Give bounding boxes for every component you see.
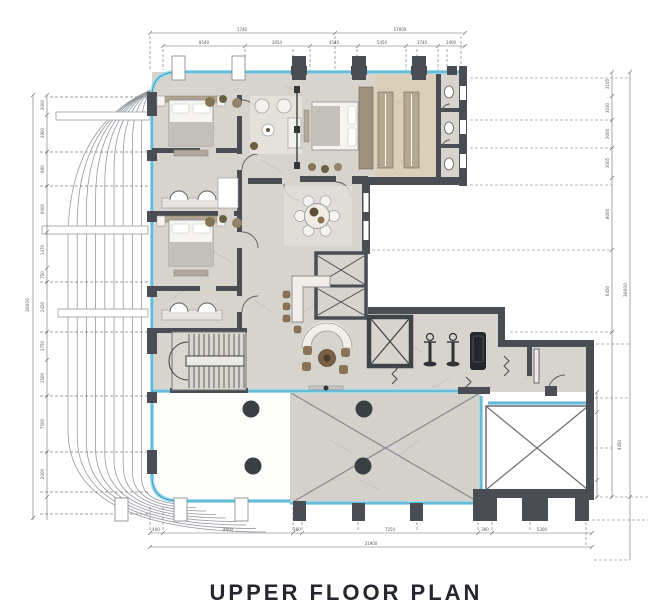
round-table-dark [243,401,260,418]
column-outline [174,498,187,521]
column-dark [293,501,306,521]
wall-bath-divider [440,144,462,148]
wall-stub-left [147,450,157,474]
floor-terrace [152,392,290,503]
dim-label: 8000 [605,208,610,219]
wall-bath1 [216,148,242,153]
column-outline [235,498,248,521]
bed-bench [174,150,208,156]
window-slit [460,154,466,168]
toilet [445,86,454,98]
wall-corridor [300,176,336,182]
page-title: UPPER FLOOR PLAN [210,580,483,605]
round-table-dark [356,401,373,418]
louver-support-bar [42,226,148,234]
dim-label: 750 [40,271,45,279]
bed-blanket [169,122,213,146]
wall-annex-stub [545,386,557,396]
toilet [445,122,454,134]
partition-cap [294,126,300,133]
wall-bed2 [152,211,218,216]
wall-bath2 [152,286,200,291]
floor-plan-drawing: 1740 17000 8540 3054 4540 5450 3740 1400… [0,0,660,615]
headboard-wardrobe-wall [359,87,373,169]
wall-gym-top [368,307,505,314]
dim-label: 3750 [40,340,45,351]
pillow [348,106,356,124]
wall-dressing-bath [436,74,441,182]
round-table-dark [355,458,372,475]
dim-label: 1470 [40,244,45,255]
table-decor [324,355,331,362]
dim-label: 1740 [237,27,248,32]
column-dark [410,503,423,521]
pouf [303,346,312,355]
dim-label: 8540 [199,40,210,45]
dim-label: 7500 [40,418,45,429]
dim-label: 4540 [329,40,340,45]
plant [250,142,258,150]
dim-label: 400 [152,527,160,532]
dim-label: 2000 [40,468,45,479]
bar-stool [283,315,290,322]
wall-corridor [248,178,282,184]
dim-label: 2450 [40,301,45,312]
floor-plan-page: 1740 17000 8540 3054 4540 5450 3740 1400… [0,0,660,615]
dim-label: 380 [481,527,489,532]
treadmill [470,332,486,370]
dim-total-label: 9450 [617,439,622,450]
wall-right [586,342,594,500]
dim-label: 380 [293,527,301,532]
bar-stool [283,291,290,298]
dim-label: 17000 [394,27,407,32]
dim-label: 3000 [40,99,45,110]
pillow [348,128,356,146]
shower [218,178,238,208]
wall-corridor [352,176,368,184]
wall-stub-left [147,92,157,116]
wall-deck-gym [458,387,490,394]
column-dark [412,56,426,80]
bed-bench [304,110,309,142]
armchair [232,218,242,228]
wall-mullion [447,66,457,75]
bed-blanket [169,242,213,266]
wall-bath2 [216,286,242,291]
dim-label: 1500 [40,372,45,383]
dining-area [284,186,352,246]
pouf [341,348,350,357]
wall-annex-top [498,340,594,347]
partition-cap [294,86,300,93]
stair-landing-rail [186,356,244,366]
dim-label: 3000 [605,128,610,139]
table-decor [310,208,319,217]
louver-support-bar [56,112,150,120]
bed-bench [174,270,208,276]
dim-total-label: 30000 [623,283,629,297]
column-outline [115,498,128,521]
shelf-unit [534,349,539,383]
wall-upper-bottom [368,177,467,185]
plant [308,163,316,171]
partition-cap [294,162,300,169]
column-dark [522,490,548,521]
window-slit [460,86,466,100]
dim-label: 3900 [40,127,45,138]
plant [321,165,329,173]
plant [334,163,342,171]
witness-lines-left [40,97,150,514]
column-outline [232,56,245,80]
window-slit [364,193,369,212]
toilet [445,158,454,170]
wall-stub-left [147,392,157,403]
dim-total-label: 31900 [365,541,378,546]
dim-label: 3740 [417,40,428,45]
nightstand [157,96,165,106]
column-dark [473,489,497,521]
pillow [172,224,189,233]
bar-stool [294,326,301,333]
plant [219,95,227,103]
dim-label: 4600 [223,527,234,532]
louver-support-bar [58,309,148,317]
pillow [172,104,189,113]
wall-annex-inner [527,342,532,376]
window-slit [364,221,369,240]
dim-label: 3054 [272,40,283,45]
dim-label: 3030 [605,102,610,113]
table-decor [318,217,325,224]
column-dark [575,490,589,521]
dim-label: 1400 [446,40,457,45]
column-dark [292,56,306,80]
window-slit [460,120,466,134]
column-dark [352,56,366,80]
dim-label: 6450 [605,285,610,296]
pouf [302,362,311,371]
floor-annex [503,342,592,392]
dim-label: 5450 [377,40,388,45]
wall-bed2 [234,211,242,216]
nightstand [157,216,165,226]
armchair [255,99,269,113]
dining-table [305,204,330,229]
column-dark [352,503,365,521]
armchair [232,98,242,108]
dining-chair [329,211,340,222]
bar-stool [283,303,290,310]
console-decor [324,386,329,391]
pouf [339,365,348,374]
dim-label: 7250 [385,527,396,532]
armchair [205,97,215,107]
wall-bath-divider [440,108,462,112]
dim-total-label: 30000 [25,298,31,312]
bed-blanket [312,106,340,146]
dining-chair [295,211,306,222]
armchair [205,217,215,227]
dim-label: 6000 [40,203,45,214]
table-decor [266,128,270,132]
dim-label: 800 [40,165,45,173]
staircase [169,332,246,390]
dim-label: 3105 [605,78,610,89]
plant [219,215,227,223]
round-table-dark [245,458,262,475]
annex-room [534,349,539,383]
armchair [277,99,291,113]
dim-label: 3005 [605,157,610,168]
column-outline [172,56,185,80]
dim-ticks [148,531,594,549]
dim-label: 5300 [537,527,548,532]
